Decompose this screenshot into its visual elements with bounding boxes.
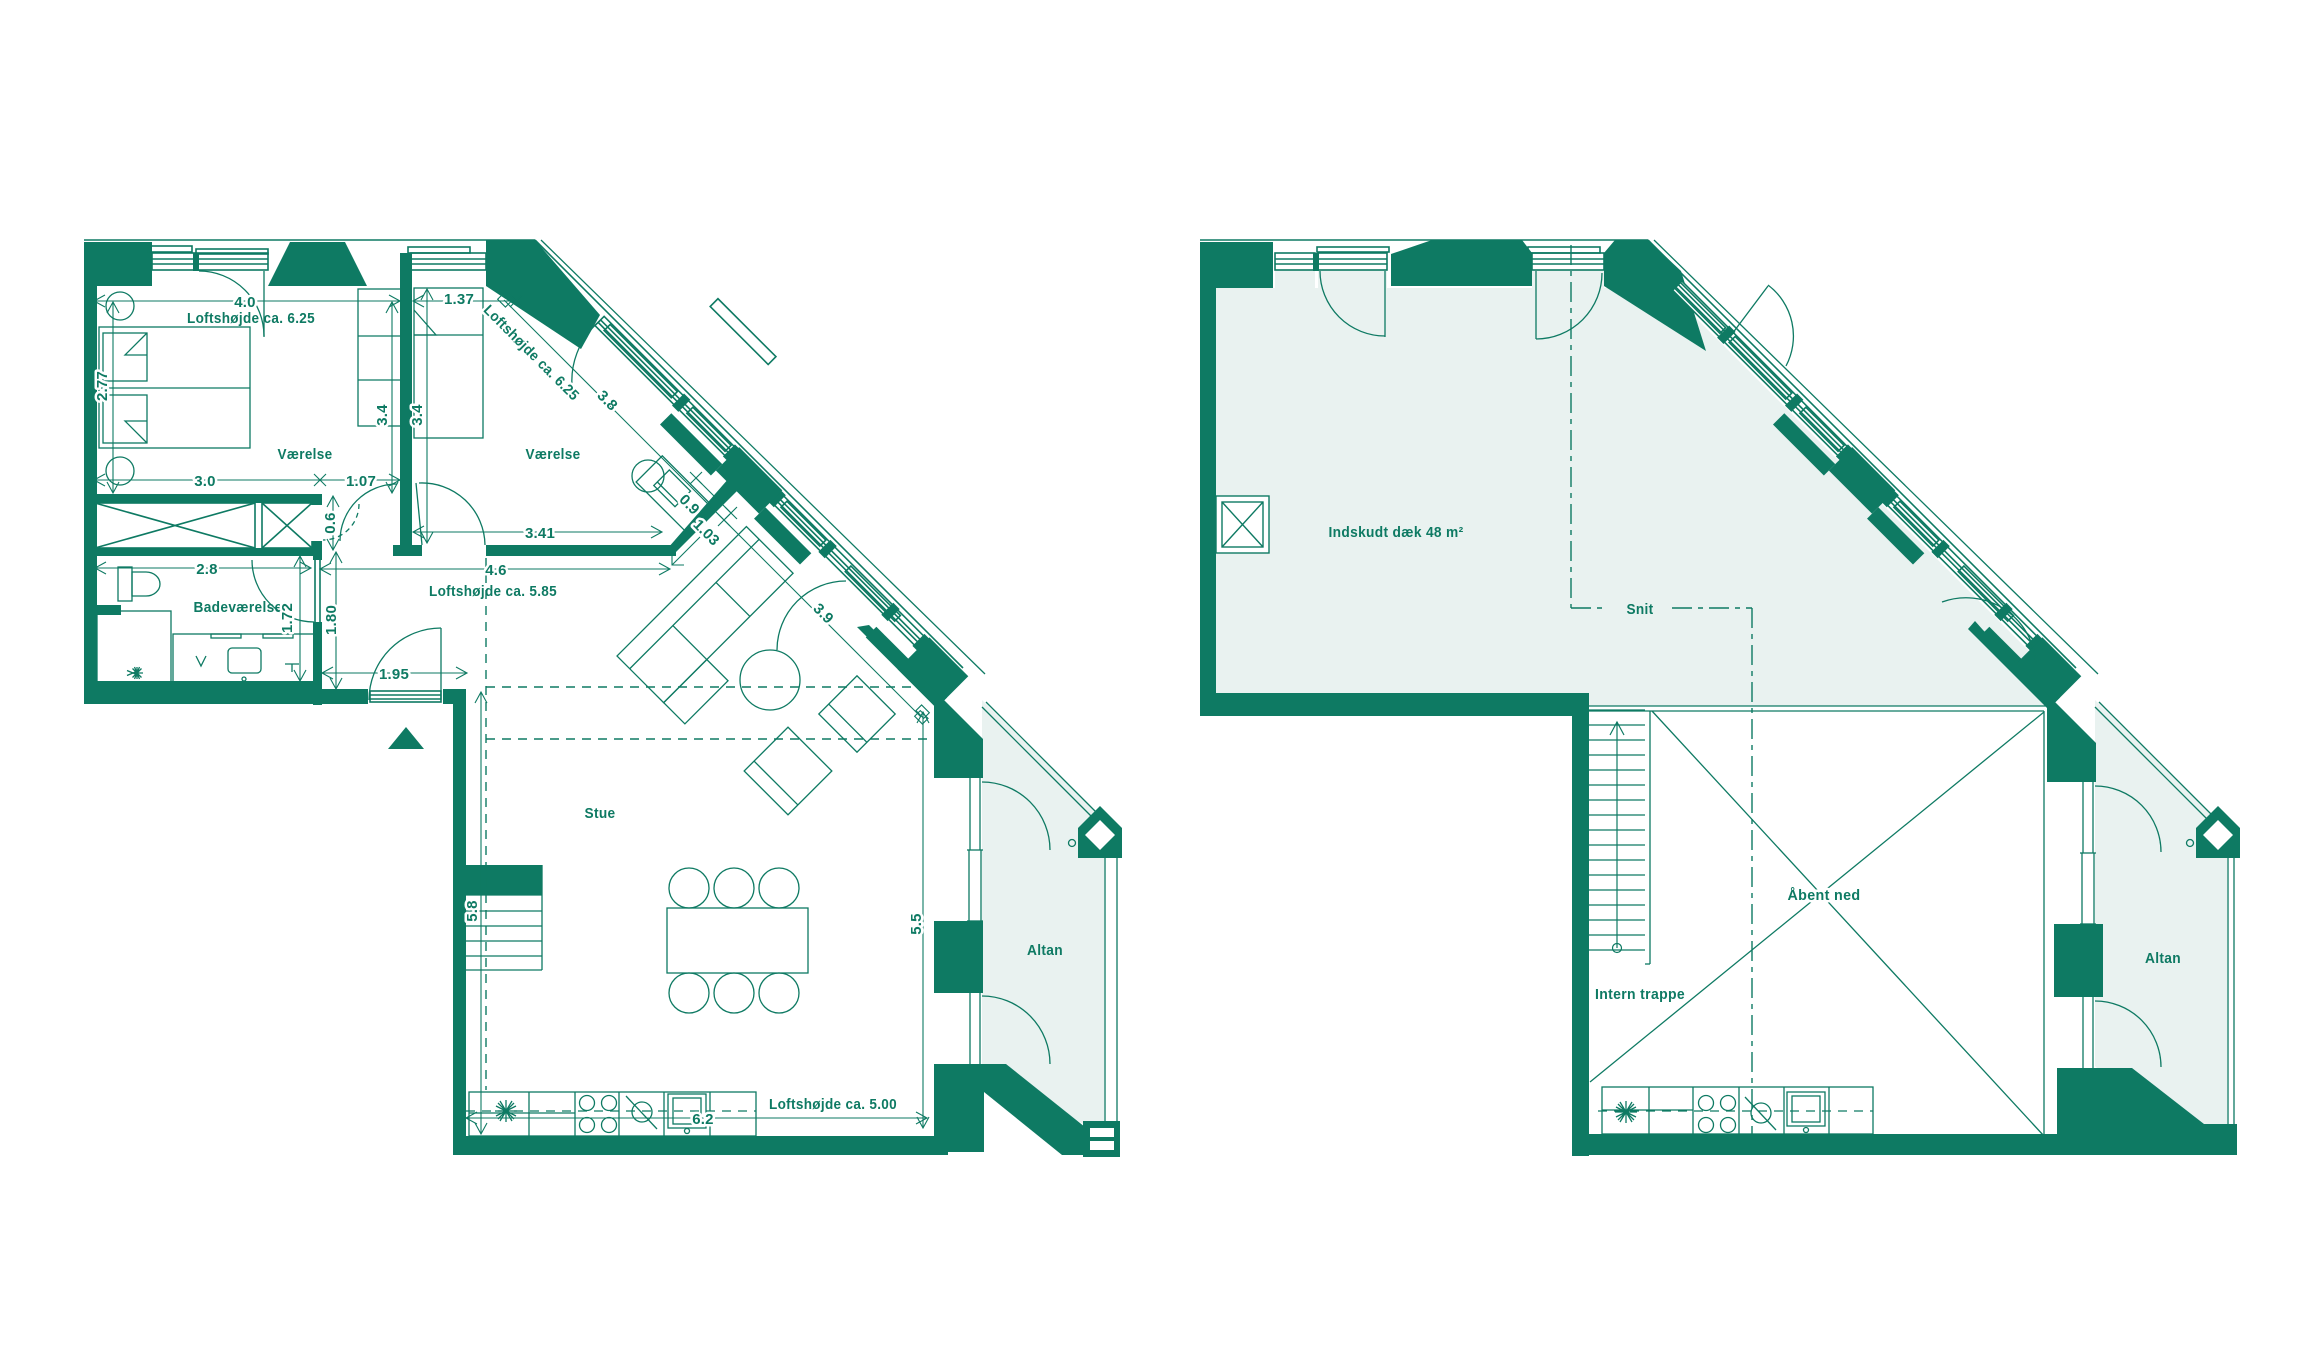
svg-text:Badeværelse: Badeværelse: [194, 600, 283, 616]
svg-text:Snit: Snit: [1627, 602, 1654, 618]
svg-text:Værelse: Værelse: [526, 447, 581, 463]
svg-text:Loftshøjde ca. 5.85: Loftshøjde ca. 5.85: [429, 584, 557, 600]
svg-text:1.07: 1.07: [346, 473, 376, 490]
svg-text:Altan: Altan: [2145, 951, 2181, 967]
svg-text:Loftshøjde ca. 5.00: Loftshøjde ca. 5.00: [769, 1097, 897, 1113]
svg-text:2.77: 2.77: [94, 371, 111, 401]
svg-text:1.72: 1.72: [279, 603, 296, 633]
svg-text:3.41: 3.41: [525, 525, 555, 542]
svg-text:3.0: 3.0: [194, 473, 215, 490]
svg-text:1.37: 1.37: [444, 291, 474, 308]
svg-text:0.6: 0.6: [322, 512, 339, 533]
svg-text:Åbent ned: Åbent ned: [1788, 887, 1861, 904]
svg-text:Indskudt dæk 48 m²: Indskudt dæk 48 m²: [1329, 525, 1464, 541]
svg-text:Intern trappe: Intern trappe: [1595, 987, 1685, 1003]
svg-text:3.4: 3.4: [409, 404, 426, 426]
svg-text:1.95: 1.95: [379, 666, 409, 683]
svg-text:Loftshøjde ca. 6.25: Loftshøjde ca. 6.25: [187, 311, 315, 327]
svg-text:Stue: Stue: [585, 806, 616, 822]
svg-text:6.2: 6.2: [692, 1111, 713, 1128]
svg-text:3.4: 3.4: [374, 404, 391, 426]
svg-text:4.0: 4.0: [234, 294, 255, 311]
svg-text:Altan: Altan: [1027, 943, 1063, 959]
svg-text:2.8: 2.8: [196, 561, 217, 578]
svg-text:1.80: 1.80: [323, 605, 340, 635]
svg-text:Værelse: Værelse: [278, 447, 333, 463]
svg-text:5.5: 5.5: [908, 913, 925, 934]
svg-text:4.6: 4.6: [485, 562, 506, 579]
svg-text:5.8: 5.8: [464, 900, 481, 921]
